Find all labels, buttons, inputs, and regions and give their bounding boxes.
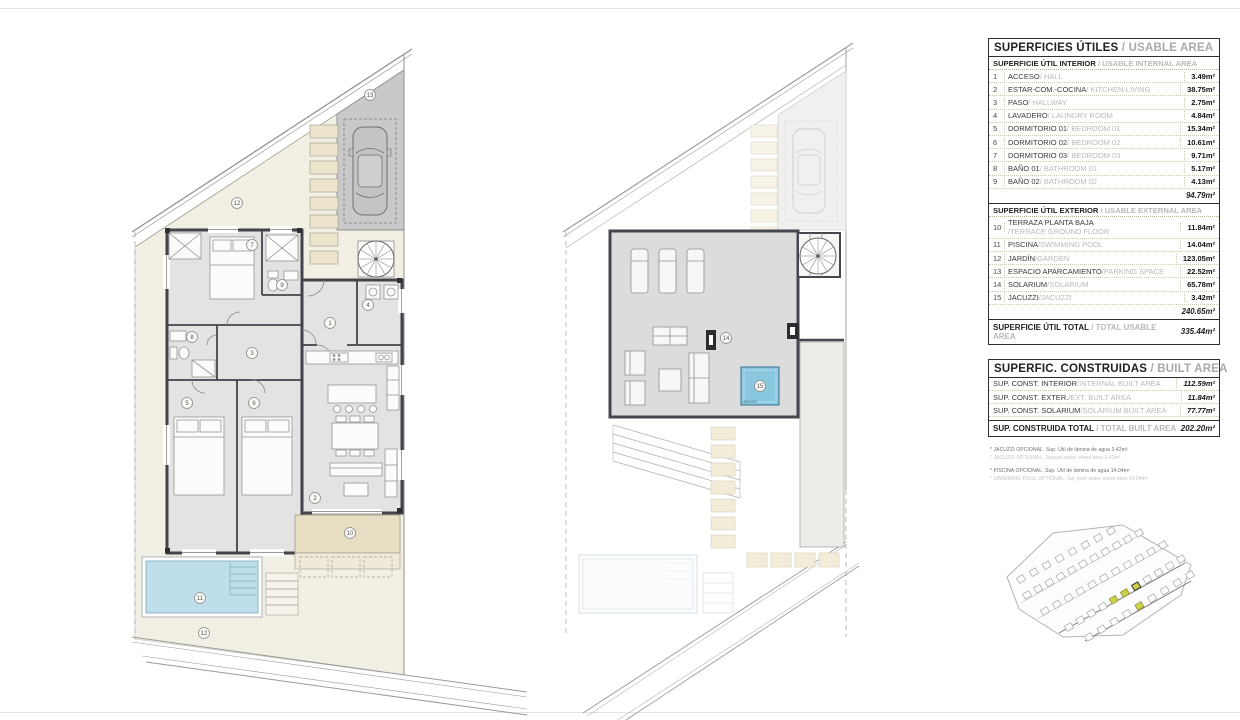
room-marker-6: 6 (249, 398, 260, 409)
exterior-subtotal: 240.65m² (989, 305, 1219, 319)
svg-text:12: 12 (201, 631, 208, 637)
room-marker-4: 4 (363, 300, 374, 311)
built-total-value: 202.20m² (1181, 424, 1215, 433)
car-top-view (349, 127, 391, 215)
built-area-title: SUPERFIC. CONSTRUIDAS / BUILT AREA (989, 360, 1219, 378)
area-row: 10TERRAZA PLANTA BAJA/TERRACE GROUND FLO… (989, 217, 1219, 239)
area-row: SUP. CONST. SOLARIUM/SOLARIUM BUILT AREA… (989, 404, 1219, 417)
room-marker-11: 11 (195, 593, 206, 604)
svg-text:14: 14 (723, 336, 730, 342)
sheet-border-bottom (0, 712, 1240, 713)
area-row: 1ACCESO/ HALL3.49m² (989, 70, 1219, 83)
footnote: * SWIMMING POOL OPTIONAL. Sw. pool water… (990, 476, 1220, 484)
room-marker-1: 1 (325, 318, 336, 329)
room-marker-12: 12 (232, 198, 243, 209)
room-marker-15: 15 (755, 381, 766, 392)
interior-rows: 1ACCESO/ HALL3.49m²2ESTAR-COM.-COCINA/ K… (989, 70, 1219, 189)
room-marker-10: 10 (345, 528, 356, 539)
area-row: 9BAÑO 02/ BATHROOM 024.13m² (989, 176, 1219, 189)
svg-text:13: 13 (367, 93, 374, 99)
footnote: * JACUZZI OPCIONAL. Sup. Útil de lámina … (990, 447, 1220, 455)
exterior-rows: 10TERRAZA PLANTA BAJA/TERRACE GROUND FLO… (989, 217, 1219, 305)
garden-steps (266, 573, 298, 615)
area-row: 7DORMITORIO 03/ BEDROOM 039.71m² (989, 149, 1219, 162)
room-marker-8: 8 (187, 332, 198, 343)
room-marker-5: 5 (182, 398, 193, 409)
built-area-table: SUPERFIC. CONSTRUIDAS / BUILT AREA SUP. … (988, 359, 1220, 438)
site-location-map (988, 517, 1220, 662)
usable-total-row: SUPERFICIE ÚTIL TOTAL / TOTAL USABLE ARE… (989, 319, 1219, 344)
room-marker-12: 12 (199, 628, 210, 639)
area-row: 5DORMITORIO 01/ BEDROOM 0115.34m² (989, 123, 1219, 136)
area-row: 8BAÑO 01/ BATHROOM 015.17m² (989, 162, 1219, 175)
usable-total-value: 335.44m² (1181, 327, 1215, 336)
svg-text:15: 15 (757, 384, 764, 390)
room-marker-7: 7 (247, 240, 258, 251)
svg-text:11: 11 (197, 596, 204, 602)
area-row: 12JARDÍN/GARDEN123.05m² (989, 252, 1219, 265)
terrace (295, 515, 400, 577)
svg-text:12: 12 (234, 201, 241, 207)
room-marker-9: 9 (277, 280, 288, 291)
faded-pool (579, 555, 733, 613)
built-rows: SUP. CONST. INTERIOR/INTERNAL BUILT AREA… (989, 378, 1219, 418)
interior-section-header: SUPERFICIE ÚTIL INTERIOR / USABLE INTERN… (989, 57, 1219, 70)
room-marker-14: 14 (721, 333, 732, 344)
area-row: 4LAVADERO/ LAUNDRY ROOM4.84m² (989, 110, 1219, 123)
site-map-drawing (993, 517, 1203, 662)
footnote: * JACUZZI OPTIONAL. Jacuzzi water sheet … (990, 455, 1220, 463)
footnote: * PISCINA OPCIONAL. Sup. Útil de lámina … (990, 468, 1220, 476)
room-marker-13: 13 (365, 90, 376, 101)
area-row: 11PISCINA/SWIMMING POOL14.04m² (989, 239, 1219, 252)
area-row: 13ESPACIO APARCAMIENTO/PARKING SPACE22.5… (989, 265, 1219, 278)
usable-area-title: SUPERFICIES ÚTILES / USABLE AREA (989, 39, 1219, 57)
area-row: 3PASO/ HALLWAY2.75m² (989, 96, 1219, 109)
solarium-plan: JACUZZI 1415 (563, 35, 863, 700)
spiral-staircase (358, 241, 394, 277)
floorplan-sheet: { "usable_table": { "title_es": "SUPERFI… (0, 0, 1240, 720)
room-marker-3: 3 (247, 348, 258, 359)
area-row: 2ESTAR-COM.-COCINA/ KITCHEN-LIVING38.75m… (989, 83, 1219, 96)
area-row: 14SOLARIUM/SOLARIUM65.78m² (989, 278, 1219, 291)
svg-text:10: 10 (347, 531, 354, 537)
built-total-row: SUP. CONSTRUIDA TOTAL / TOTAL BUILT AREA… (989, 421, 1219, 436)
jacuzzi-label: JACUZZI (743, 400, 757, 404)
room-marker-2: 2 (310, 493, 321, 504)
area-row: SUP. CONST. EXTER./EXT. BUILT AREA11.84m… (989, 391, 1219, 404)
usable-area-table: SUPERFICIES ÚTILES / USABLE AREA SUPERFI… (988, 38, 1220, 345)
area-info-panel: SUPERFICIES ÚTILES / USABLE AREA SUPERFI… (988, 38, 1220, 662)
ground-floor-plan: 1234567891011121312 (132, 35, 527, 700)
area-footnotes: * JACUZZI OPCIONAL. Sup. Útil de lámina … (988, 447, 1220, 483)
interior-subtotal: 94.79m² (989, 189, 1219, 204)
exterior-section-header: SUPERFICIE ÚTIL EXTERIOR / USABLE EXTERN… (989, 204, 1219, 217)
area-row: 15JACUZZI/JACUZZI3.42m² (989, 292, 1219, 305)
sheet-border-top (0, 8, 1240, 9)
faded-stones (751, 125, 777, 239)
area-row: SUP. CONST. INTERIOR/INTERNAL BUILT AREA… (989, 378, 1219, 391)
area-row: 6DORMITORIO 02/ BEDROOM 0210.61m² (989, 136, 1219, 149)
